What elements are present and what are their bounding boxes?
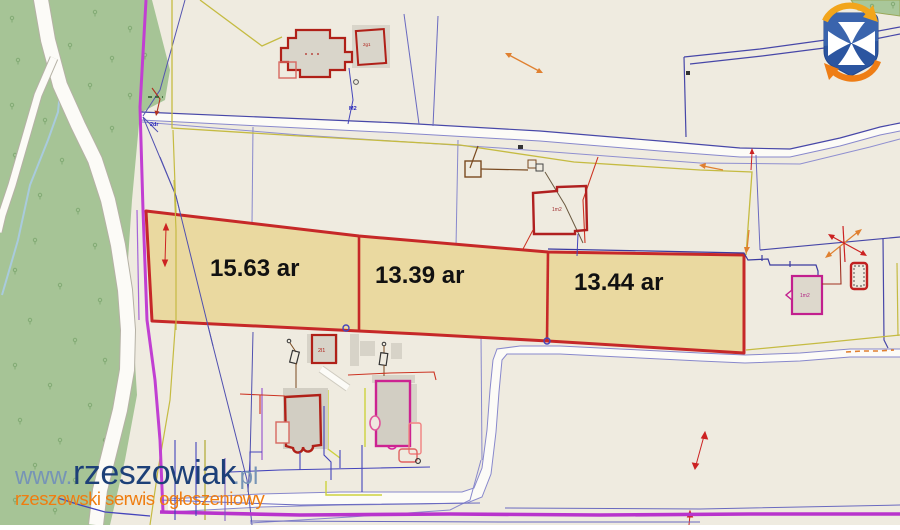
svg-text:2g1: 2g1 bbox=[363, 42, 371, 47]
svg-text:www.: www. bbox=[14, 463, 72, 490]
svg-text:rzeszowiak: rzeszowiak bbox=[73, 454, 238, 492]
svg-text:.pl: .pl bbox=[233, 463, 258, 490]
svg-text:2dr: 2dr bbox=[150, 122, 159, 128]
svg-text:M2: M2 bbox=[349, 106, 357, 112]
svg-text:15.63 ar: 15.63 ar bbox=[210, 255, 299, 282]
svg-text:13.39 ar: 13.39 ar bbox=[375, 262, 464, 289]
svg-text:1m2: 1m2 bbox=[552, 207, 562, 213]
svg-text:rzeszowski serwis ogłoszeniowy: rzeszowski serwis ogłoszeniowy bbox=[15, 488, 265, 509]
svg-text:2l1: 2l1 bbox=[318, 348, 325, 354]
svg-text:1m2: 1m2 bbox=[800, 293, 810, 299]
svg-text:13.44 ar: 13.44 ar bbox=[574, 269, 663, 296]
